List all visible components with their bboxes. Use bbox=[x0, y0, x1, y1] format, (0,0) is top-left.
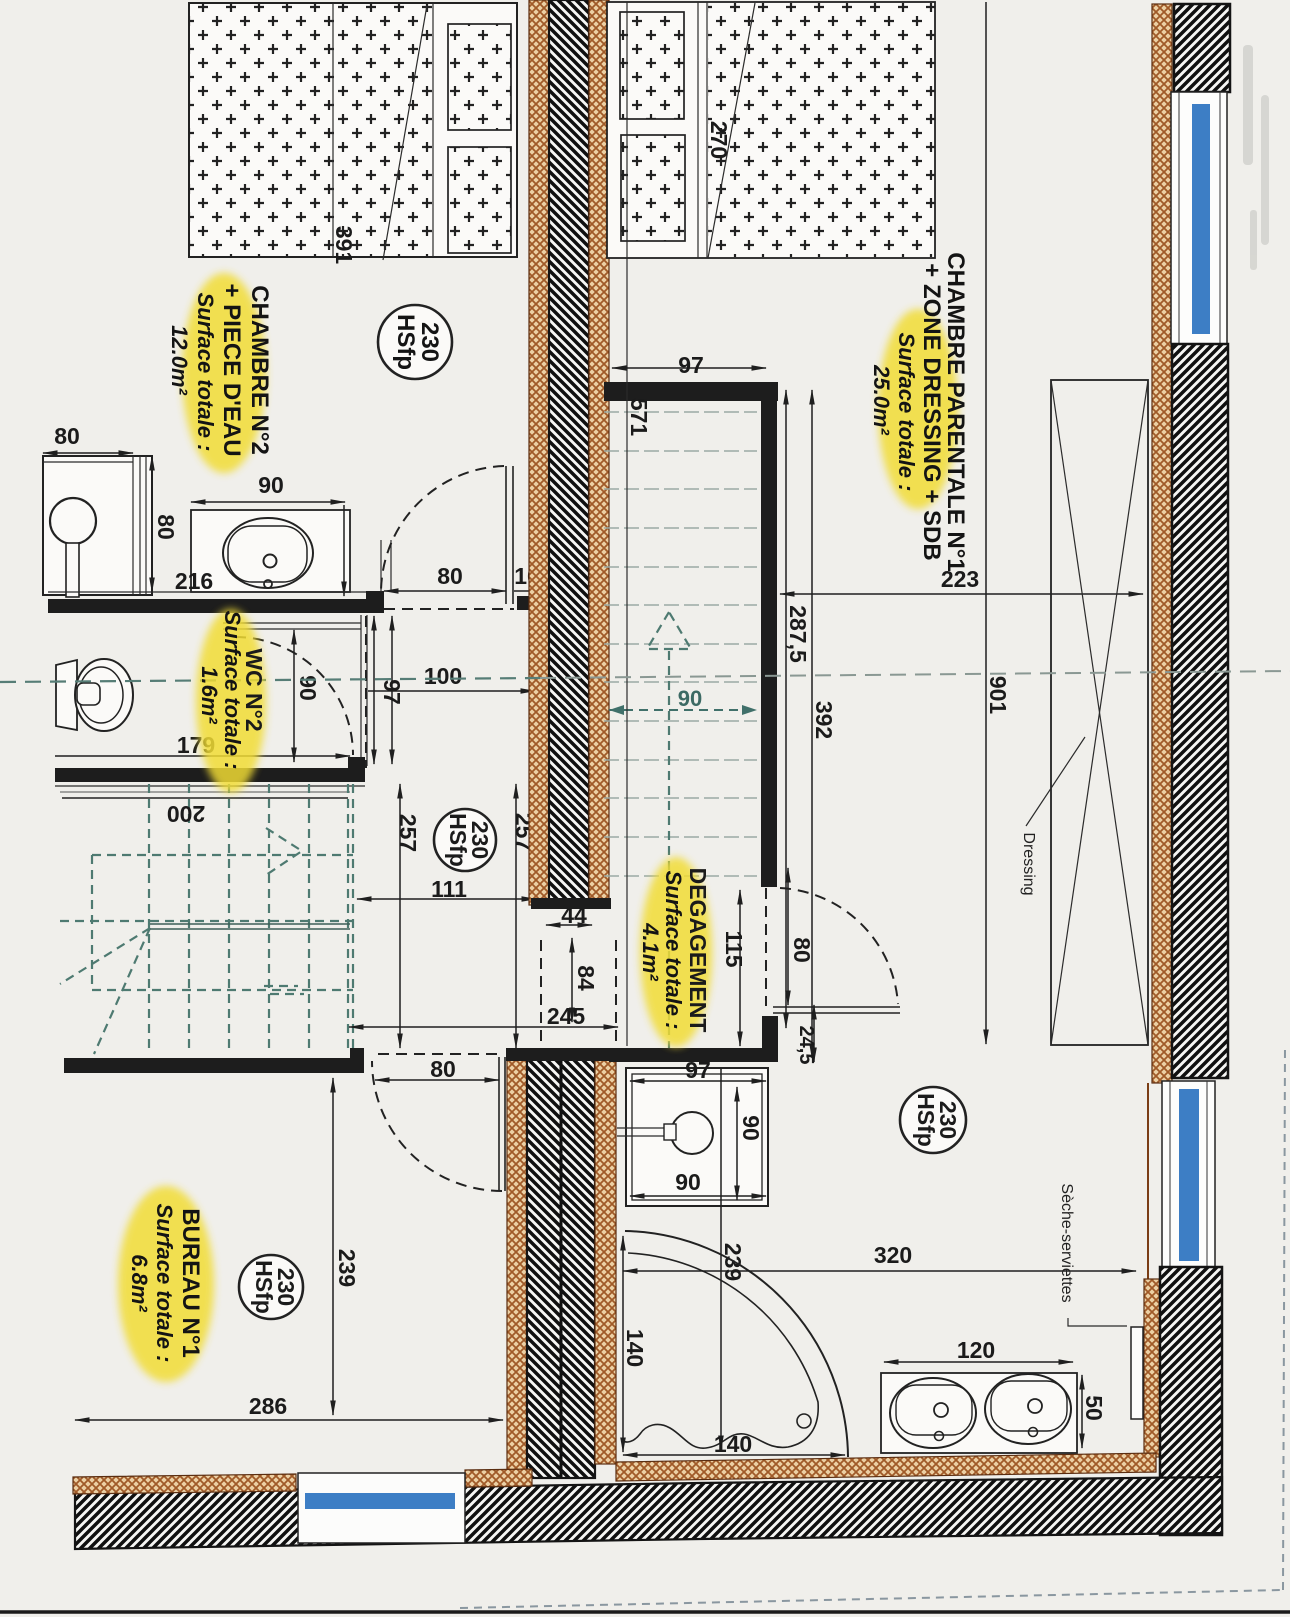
svg-text:6.8m²: 6.8m² bbox=[127, 1254, 152, 1312]
svg-text:140: 140 bbox=[714, 1431, 752, 1457]
svg-text:392: 392 bbox=[811, 701, 837, 739]
svg-text:287,5: 287,5 bbox=[785, 605, 811, 663]
svg-text:200: 200 bbox=[167, 801, 205, 827]
svg-text:270: 270 bbox=[706, 121, 732, 159]
svg-text:+ ZONE DRESSING + SDB: + ZONE DRESSING + SDB bbox=[918, 263, 945, 560]
svg-text:80: 80 bbox=[437, 563, 463, 589]
svg-text:25.0m²: 25.0m² bbox=[869, 364, 894, 435]
svg-text:230: 230 bbox=[416, 322, 443, 362]
svg-text:115: 115 bbox=[721, 930, 747, 967]
svg-text:257: 257 bbox=[395, 814, 421, 852]
svg-text:90: 90 bbox=[258, 472, 284, 498]
svg-text:Sèche-serviettes: Sèche-serviettes bbox=[1058, 1183, 1075, 1302]
svg-text:24,5: 24,5 bbox=[795, 1026, 817, 1065]
svg-text:Surface totale :: Surface totale : bbox=[220, 611, 245, 770]
svg-text:84: 84 bbox=[573, 965, 599, 991]
svg-text:90: 90 bbox=[675, 1169, 701, 1195]
svg-text:+ PIECE D'EAU: + PIECE D'EAU bbox=[218, 283, 245, 456]
svg-text:80: 80 bbox=[153, 514, 179, 540]
svg-text:286: 286 bbox=[249, 1393, 287, 1419]
svg-text:12.0m²: 12.0m² bbox=[167, 325, 192, 395]
svg-text:320: 320 bbox=[874, 1242, 912, 1268]
svg-text:DEGAGEMENT: DEGAGEMENT bbox=[685, 868, 711, 1033]
svg-text:111: 111 bbox=[431, 876, 467, 902]
svg-text:571: 571 bbox=[626, 398, 652, 437]
svg-text:Surface totale :: Surface totale : bbox=[193, 293, 218, 452]
svg-text:140: 140 bbox=[622, 1329, 648, 1367]
svg-text:100: 100 bbox=[424, 663, 462, 689]
svg-text:1.6m²: 1.6m² bbox=[197, 666, 222, 724]
svg-text:90: 90 bbox=[738, 1115, 764, 1141]
svg-text:901: 901 bbox=[985, 676, 1011, 715]
svg-text:239: 239 bbox=[334, 1249, 360, 1287]
svg-text:80: 80 bbox=[789, 937, 815, 963]
svg-text:97: 97 bbox=[685, 1057, 711, 1083]
svg-text:CHAMBRE N°2: CHAMBRE N°2 bbox=[246, 285, 273, 455]
svg-text:Surface totale :: Surface totale : bbox=[152, 1204, 177, 1363]
svg-text:Dressing: Dressing bbox=[1020, 832, 1037, 895]
svg-text:HSfp: HSfp bbox=[392, 314, 419, 370]
svg-text:230: 230 bbox=[467, 821, 493, 859]
svg-text:97: 97 bbox=[379, 679, 405, 705]
svg-text:Surface totale :: Surface totale : bbox=[894, 333, 919, 492]
svg-text:391: 391 bbox=[331, 226, 357, 265]
svg-text:80: 80 bbox=[430, 1056, 456, 1082]
svg-text:CHAMBRE PARENTALE N°1: CHAMBRE PARENTALE N°1 bbox=[942, 252, 969, 571]
svg-text:216: 216 bbox=[175, 568, 213, 594]
svg-text:230: 230 bbox=[935, 1101, 961, 1139]
svg-text:90: 90 bbox=[678, 686, 702, 711]
svg-text:4.1m²: 4.1m² bbox=[638, 922, 663, 981]
svg-text:120: 120 bbox=[957, 1337, 995, 1363]
svg-text:50: 50 bbox=[1081, 1395, 1107, 1421]
svg-text:80: 80 bbox=[54, 423, 80, 449]
svg-text:245: 245 bbox=[547, 1003, 586, 1029]
svg-text:230: 230 bbox=[273, 1268, 299, 1306]
svg-text:Surface totale :: Surface totale : bbox=[661, 871, 686, 1030]
svg-text:BUREAU N°1: BUREAU N°1 bbox=[177, 1208, 204, 1358]
svg-text:97: 97 bbox=[678, 352, 704, 378]
